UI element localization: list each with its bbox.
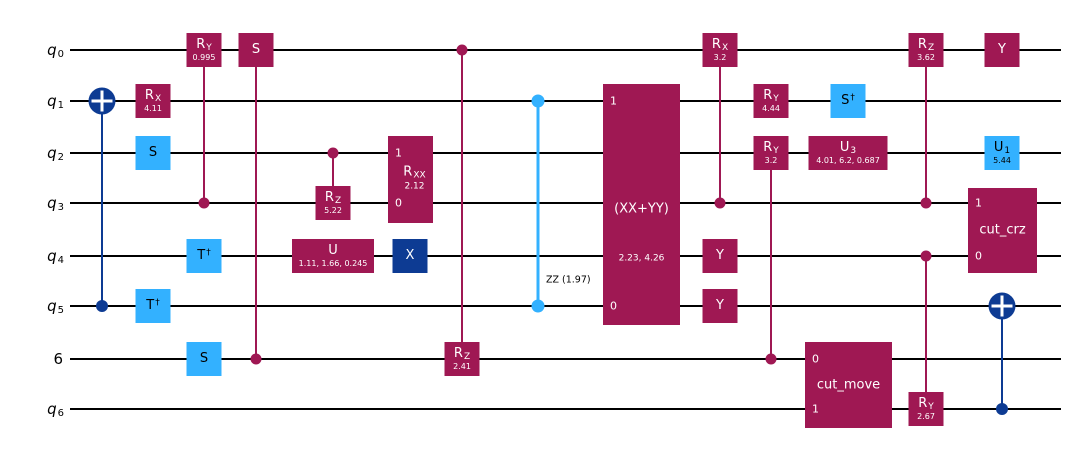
- control-dot-crz362-q3: [921, 198, 932, 209]
- wire-label-q1: q1: [47, 92, 64, 110]
- control-line-cry32: [770, 153, 772, 359]
- wire-label-6: 6: [53, 350, 64, 368]
- gate-s-q2: S: [136, 136, 171, 170]
- wire-label-q0: q0: [47, 41, 64, 59]
- control-line-cry267: [925, 256, 927, 409]
- gate-cut-move: 0 cut_move 1: [805, 342, 892, 428]
- cnot-target-icon-1: [89, 88, 116, 115]
- gate-rz2-q0: RZ 3.62: [909, 33, 944, 67]
- control-line-cs: [255, 50, 257, 359]
- gate-u1-q2: U1 5.44: [985, 136, 1020, 170]
- wire-label-q5: q5: [47, 297, 64, 315]
- cnot-target-icon-2: [989, 293, 1016, 320]
- wire-q2: [70, 152, 1061, 154]
- control-dot-cs-wire6: [251, 354, 262, 365]
- gate-cs-q0: S: [239, 33, 274, 67]
- gate-cut-crz: 1 cut_crz 0: [968, 188, 1037, 273]
- cnot-control-dot-1: [96, 300, 108, 312]
- quantum-circuit-canvas: q0 q1 q2 q3 q4 q5 6 q6 RX 4.11 S T† RY 0…: [0, 0, 1072, 452]
- gate-rz-q3: RZ 5.22: [316, 186, 351, 220]
- wire-q3: [70, 202, 1061, 204]
- gate-s-wire6: S: [187, 342, 222, 376]
- control-line-ry0995: [203, 50, 205, 203]
- gate-y-q0: Y: [985, 33, 1020, 67]
- wire-q1: [70, 100, 1061, 102]
- gate-u3-q2: U3 4.01, 6.2, 0.687: [809, 136, 888, 170]
- control-line-crz362: [925, 50, 927, 203]
- gate-rz-wire6: RZ 2.41: [445, 342, 480, 376]
- zz-coupling-label: ZZ (1.97): [546, 275, 591, 286]
- gate-ry-q0: RY 0.995: [187, 33, 222, 67]
- control-line-crz241: [461, 50, 463, 359]
- wire-label-q6: q6: [47, 400, 64, 418]
- wire-q5: [70, 305, 1061, 307]
- gate-rx-q0: RX 3.2: [703, 33, 738, 67]
- gate-ry-q2: RY 3.2: [754, 136, 789, 170]
- wire-label-q4: q4: [47, 247, 64, 265]
- control-dot-cry32-wire6: [766, 354, 777, 365]
- zz-line: [537, 101, 540, 306]
- gate-y-q4: Y: [703, 239, 738, 273]
- control-dot-ry0995-q3: [199, 198, 210, 209]
- gate-rx-q1: RX 4.11: [136, 84, 171, 118]
- control-dot-cry267-q4: [921, 251, 932, 262]
- control-dot-crz241-q0: [457, 45, 468, 56]
- gate-x-q4: X: [393, 239, 428, 273]
- cnot-control-dot-2: [996, 403, 1008, 415]
- gate-rxx-q2q3: 1 RXX 2.12 0: [388, 136, 433, 223]
- gate-u-q4: U 1.11, 1.66, 0.245: [292, 239, 374, 273]
- gate-xxyy-q1q5: 1 (XX+YY) 2.23, 4.26 0: [603, 84, 680, 325]
- wire-label-q3: q3: [47, 194, 64, 212]
- gate-ry-q6: RY 2.67: [909, 392, 944, 426]
- cx-line-1: [101, 101, 103, 306]
- gate-y-q5: Y: [703, 289, 738, 323]
- cx-line-2: [1001, 306, 1003, 409]
- control-dot-crx32-q3: [715, 198, 726, 209]
- gate-ry-q1: RY 4.44: [754, 84, 789, 118]
- gate-sdg-q1: S†: [831, 84, 866, 118]
- wire-label-q2: q2: [47, 144, 64, 162]
- gate-tdg-q4: T†: [187, 239, 222, 273]
- zz-dot-q5: [532, 300, 545, 313]
- zz-dot-q1: [532, 95, 545, 108]
- control-dot-crz522-q2: [328, 148, 339, 159]
- gate-tdg-q5: T†: [136, 289, 171, 323]
- control-line-crx32: [719, 50, 721, 203]
